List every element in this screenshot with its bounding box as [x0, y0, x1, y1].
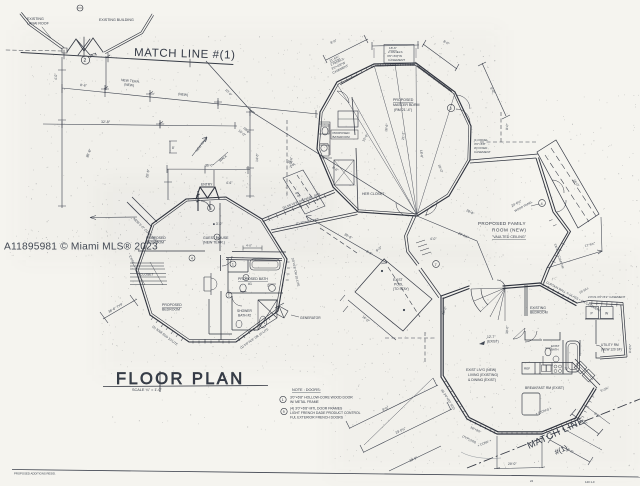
svg-text:LANAI ROOF: LANAI ROOF [27, 21, 50, 25]
svg-text:UTILITY RM: UTILITY RM [601, 343, 619, 347]
svg-text:CASEMENT: CASEMENT [474, 150, 491, 154]
svg-text:8'-0": 8'-0" [505, 123, 509, 131]
svg-text:32'-0": 32'-0" [101, 120, 111, 124]
svg-text:PROPOSED ADDITIONS RESID.: PROPOSED ADDITIONS RESID. [14, 472, 56, 476]
svg-text:LIVING (EXISTING): LIVING (EXISTING) [468, 373, 498, 377]
svg-text:PROPOSED: PROPOSED [162, 303, 182, 307]
svg-text:A11895981 © Miami MLS® 2023: A11895981 © Miami MLS® 2023 [4, 242, 158, 253]
svg-text:1: 1 [245, 276, 247, 280]
svg-text:EXISTING: EXISTING [530, 306, 546, 310]
svg-text:8'-6": 8'-6" [80, 83, 88, 88]
svg-text:12'-7": 12'-7" [487, 335, 496, 339]
svg-text:9: 9 [283, 410, 285, 414]
svg-text:4'-0": 4'-0" [430, 237, 437, 241]
svg-text:4: 4 [541, 202, 543, 206]
svg-text:SCALE ¼" = 1'-0": SCALE ¼" = 1'-0" [132, 388, 163, 392]
svg-text:(TO STAY): (TO STAY) [393, 287, 409, 291]
svg-text:8'-0¾": 8'-0¾" [628, 344, 632, 353]
svg-text:NOTE : DOORS:: NOTE : DOORS: [292, 388, 321, 392]
svg-text:1: 1 [228, 294, 230, 298]
svg-text:■ 3'-0": ■ 3'-0" [213, 222, 223, 226]
svg-text:4'-0": 4'-0" [246, 244, 252, 248]
svg-text:W/ METAL FRAME: W/ METAL FRAME [290, 400, 320, 404]
svg-text:(4) 3'0"×6'8"-MTL DOOR FRAMES: (4) 3'0"×6'8"-MTL DOOR FRAMES [290, 407, 343, 411]
svg-text:3'0"×6'8" HOLLOW-CORE WOOD DOO: 3'0"×6'8" HOLLOW-CORE WOOD DOOR [290, 396, 353, 400]
svg-text:FLOOR PLAN: FLOOR PLAN [116, 370, 245, 388]
svg-text:PROPOSED: PROPOSED [393, 98, 414, 102]
svg-text:& DINING (EXIST): & DINING (EXIST) [468, 378, 496, 382]
svg-text:"VAULTED CEILING": "VAULTED CEILING" [492, 235, 527, 239]
svg-text:#1: #1 [248, 282, 252, 286]
svg-text:36'-0": 36'-0" [205, 164, 214, 168]
svg-text:LIGHT FRENCH DADE PRODUCT CONT: LIGHT FRENCH DADE PRODUCT CONTROL [290, 411, 361, 415]
svg-text:REF: REF [524, 367, 530, 371]
svg-text:2: 2 [450, 107, 452, 111]
svg-text:EXIST: EXIST [393, 278, 403, 282]
svg-text:8': 8' [172, 146, 175, 150]
svg-text:4'-6": 4'-6" [226, 181, 232, 185]
svg-text:29'-0": 29'-0" [508, 462, 518, 466]
svg-text:EXISTING: EXISTING [27, 17, 44, 21]
svg-text:PROPOSED: PROPOSED [146, 236, 166, 240]
svg-text:GENERATOR: GENERATOR [300, 316, 321, 320]
svg-text:ENTRY: ENTRY [201, 183, 213, 187]
svg-text:1: 1 [232, 263, 234, 267]
svg-text:30: 30 [565, 367, 569, 371]
svg-text:4'-0": 4'-0" [54, 74, 58, 80]
svg-text:(NEW TERR.): (NEW TERR.) [203, 241, 225, 245]
svg-text:(RM 21'-4"): (RM 21'-4") [394, 108, 412, 112]
svg-text:4: 4 [191, 257, 193, 261]
svg-text:MASTER BDRM: MASTER BDRM [393, 103, 420, 107]
svg-text:BATH: BATH [551, 348, 559, 352]
svg-text:1: 1 [216, 236, 218, 240]
svg-text:PROPOSED FAMILY: PROPOSED FAMILY [478, 221, 526, 226]
svg-text:140 1-0: 140 1-0 [585, 480, 595, 484]
svg-text:ROOM (NEW): ROOM (NEW) [492, 228, 526, 233]
svg-text:30'-0": 30'-0" [505, 325, 509, 334]
svg-text:2: 2 [84, 58, 87, 64]
svg-text:21'-2": 21'-2" [401, 131, 405, 140]
svg-text:(EXIST): (EXIST) [487, 340, 499, 344]
svg-text:HER CLOSET: HER CLOSET [362, 192, 385, 196]
svg-text:BREAKFAST RM (EXIST): BREAKFAST RM (EXIST) [525, 386, 564, 390]
svg-text:BATHROOM: BATHROOM [333, 135, 351, 139]
svg-text:FUL EXTERIOR FRENCH DOORS: FUL EXTERIOR FRENCH DOORS [290, 416, 344, 420]
svg-text:PROPOSED BATH: PROPOSED BATH [238, 277, 268, 281]
svg-text:5: 5 [210, 207, 212, 211]
svg-text:2 PCS 3'6"×5'2" CASEMENT: 2 PCS 3'6"×5'2" CASEMENT [588, 295, 626, 299]
svg-text:CLOSET: CLOSET [140, 273, 154, 277]
svg-text:1: 1 [282, 398, 284, 402]
svg-text:BATH #2: BATH #2 [238, 314, 251, 318]
svg-text:BEDROOM: BEDROOM [530, 311, 548, 315]
svg-text:BEDROOM: BEDROOM [162, 308, 180, 312]
svg-text:POOL: POOL [394, 283, 403, 287]
svg-text:7: 7 [435, 263, 437, 267]
svg-text:24: 24 [530, 479, 534, 483]
svg-text:(NEW 120 SF): (NEW 120 SF) [601, 347, 622, 351]
svg-text:21'-6¾": 21'-6¾" [289, 156, 293, 168]
svg-text:SHOWER: SHOWER [237, 309, 252, 313]
svg-text:EXIST LIV'G (NEW): EXIST LIV'G (NEW) [466, 368, 496, 372]
svg-text:EXISTING BUILDING: EXISTING BUILDING [99, 18, 134, 22]
svg-text:14'-6": 14'-6" [255, 152, 259, 162]
svg-text:CASEMENT: CASEMENT [388, 58, 405, 62]
